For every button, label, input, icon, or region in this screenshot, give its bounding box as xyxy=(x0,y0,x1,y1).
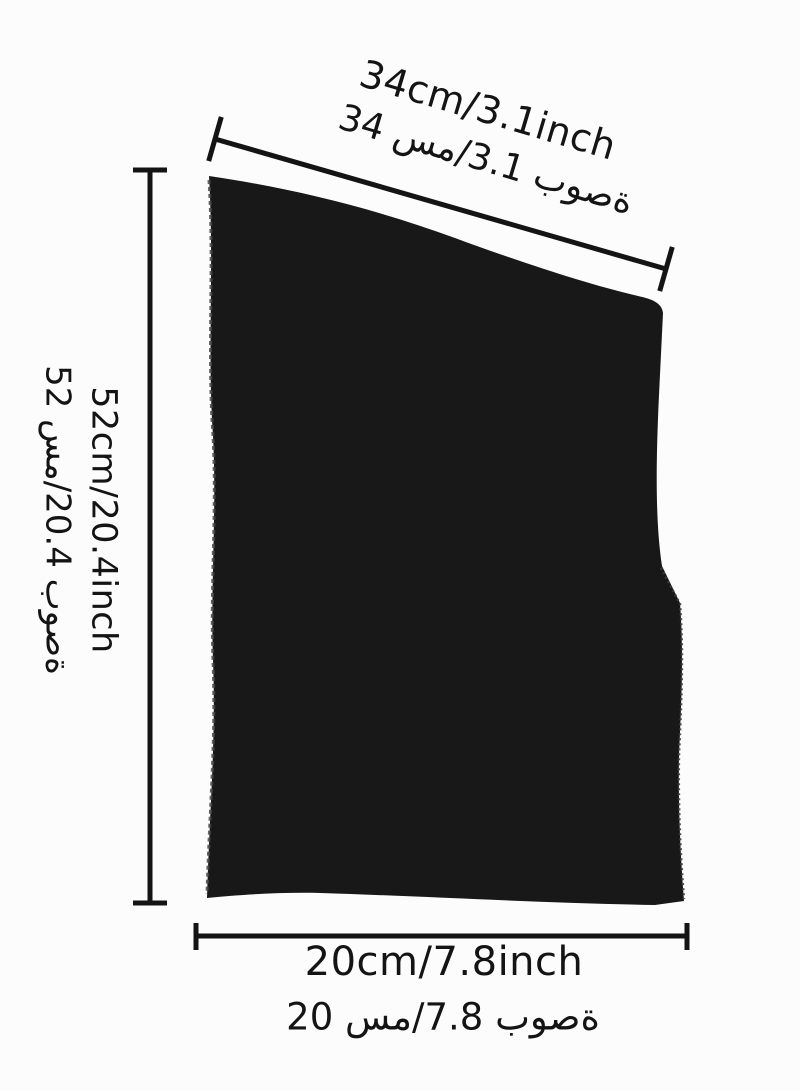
fabric-photo xyxy=(207,176,684,905)
bottom-width-label-en: 20cm/7.8inch xyxy=(305,939,584,985)
height-label-en: 52cm/20.4inch xyxy=(79,365,126,675)
product-dimension-diagram: 34cm/3.1inch 34 سم/3.1 بوصة 52cm/20.4inc… xyxy=(0,0,800,1091)
height-label-block: 52cm/20.4inch 52 سم/20.4 بوصة xyxy=(33,365,126,675)
height-label-ar: 52 سم/20.4 بوصة xyxy=(33,365,79,675)
height-dimension-line xyxy=(133,170,167,903)
bottom-width-label-ar: 20 سم/7.8 بوصة xyxy=(286,996,600,1039)
